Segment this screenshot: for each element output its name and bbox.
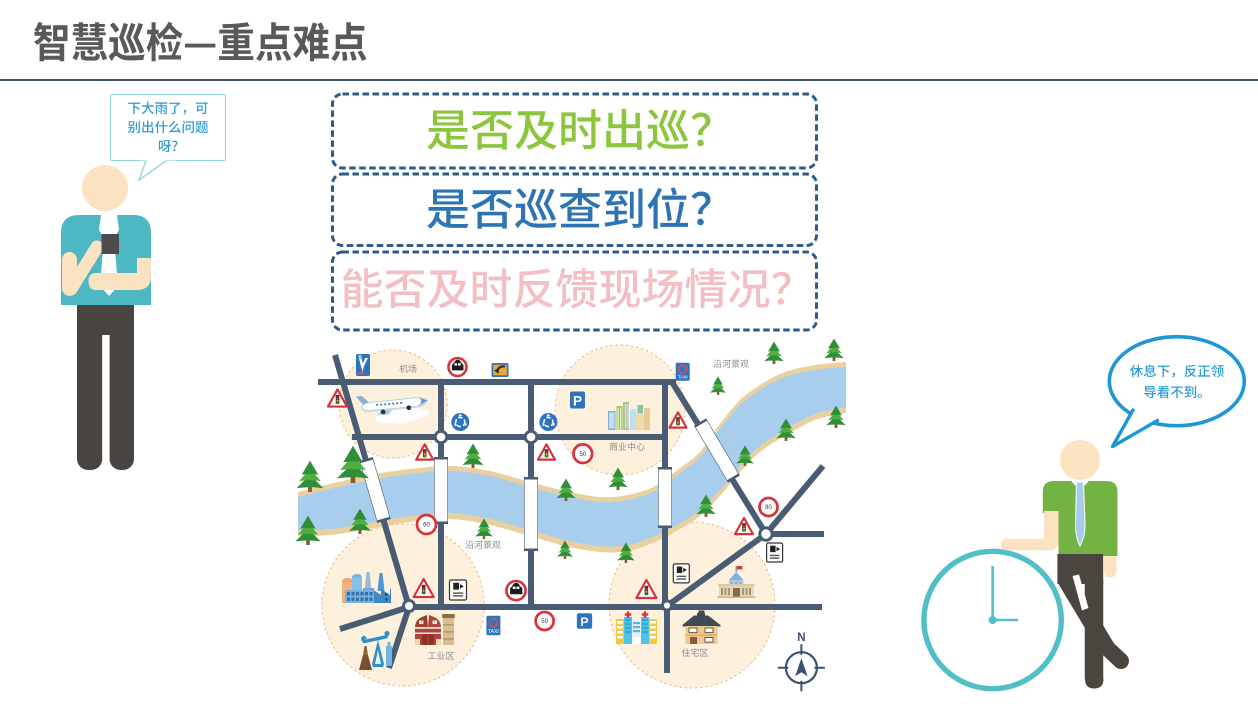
- svg-text:P: P: [580, 615, 588, 629]
- svg-text:50: 50: [579, 452, 586, 458]
- svg-text:P: P: [573, 393, 582, 408]
- svg-text:TAXI: TAXI: [678, 375, 688, 380]
- svg-text:80: 80: [765, 505, 772, 511]
- svg-text:50: 50: [541, 619, 548, 625]
- svg-text:60: 60: [423, 523, 430, 529]
- svg-text:N: N: [797, 632, 805, 644]
- svg-text:TAXI: TAXI: [488, 629, 499, 635]
